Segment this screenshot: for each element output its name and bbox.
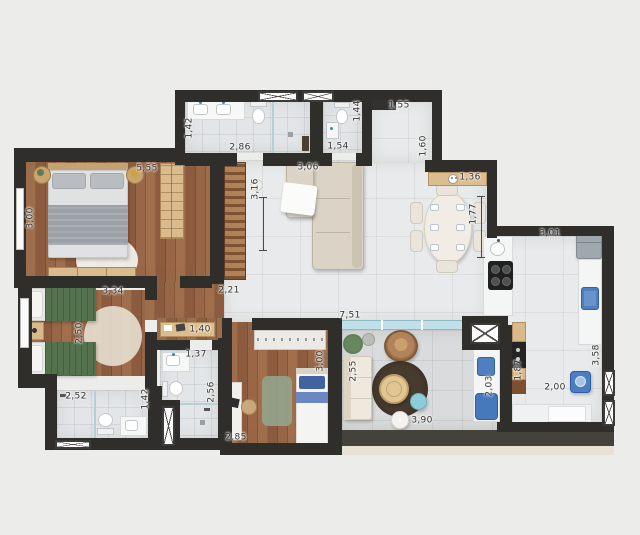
oven-tower (512, 342, 526, 368)
toilet-bowl (169, 381, 183, 396)
master-bed-headboard (48, 163, 128, 170)
wall (263, 153, 332, 166)
wall (356, 153, 372, 166)
toilet-bowl (98, 413, 113, 427)
refrigerator-line (576, 242, 602, 243)
tall-cabinet-wood (512, 380, 526, 394)
mini-fridge (475, 393, 498, 420)
dimension-line (263, 197, 264, 251)
balcony-sofa-line (351, 398, 372, 399)
wall (328, 318, 342, 455)
master-pillow (90, 173, 124, 189)
kitchen-sink (490, 242, 505, 256)
lamp-icon (131, 170, 138, 177)
window-icon (162, 406, 175, 446)
tv-rack (224, 162, 246, 280)
lamp-icon (32, 328, 37, 333)
dining-chair (473, 202, 486, 224)
wall (310, 98, 323, 158)
nook-laptop (176, 323, 186, 331)
master-wardrobe-divider (171, 163, 172, 239)
bedroom3-chair (241, 399, 257, 415)
floor-lamp (251, 179, 263, 191)
burner-icon (502, 265, 511, 274)
toilet (162, 381, 168, 397)
towel (302, 136, 309, 151)
window-icon (470, 323, 500, 344)
dimension-tick (259, 197, 267, 198)
wall (14, 276, 154, 288)
shower-drain (288, 132, 293, 137)
gourmet-sink (477, 357, 495, 376)
toilet (334, 102, 350, 108)
wall (222, 318, 232, 342)
lavabo-sink (326, 122, 339, 139)
balcony-glass-door (342, 320, 462, 330)
wall (145, 276, 157, 300)
wall (218, 338, 232, 450)
toilet-bowl (252, 108, 265, 124)
glass-divider (421, 320, 423, 330)
wall (157, 340, 190, 350)
dining-chair (410, 230, 423, 252)
shower-head-icon (204, 408, 210, 411)
stool (391, 411, 409, 429)
sofa-backrest (352, 164, 362, 268)
tall-cabinet (512, 322, 526, 342)
floor-plan: 5,551,422,863,063,161,441,541,551,601,36… (0, 0, 640, 535)
wall (252, 318, 328, 330)
burner-icon (491, 265, 500, 274)
side-table-blue (410, 393, 427, 410)
window-strip (16, 188, 24, 250)
place-setting (430, 224, 439, 231)
window-icon (603, 370, 615, 396)
burner-icon (502, 277, 511, 286)
faucet-icon (497, 239, 500, 242)
window-strip (20, 298, 29, 348)
bedroom3-throw (296, 392, 328, 403)
bath3-basin (166, 355, 180, 366)
wall (487, 226, 614, 236)
laundry-basket (548, 406, 586, 422)
place-setting (456, 204, 465, 211)
sofa-cushion-line (316, 232, 350, 233)
twin-duvet (45, 342, 96, 375)
rattan-chair (384, 330, 418, 362)
dining-chair (436, 260, 458, 273)
dining-chair (410, 202, 423, 224)
plant-icon (37, 169, 44, 176)
window-icon (603, 400, 615, 426)
faucet-icon (172, 353, 175, 356)
balcony-ledge (330, 446, 614, 455)
bedroom3-rug (262, 376, 292, 426)
place-setting (430, 244, 439, 251)
dimension-tick (477, 196, 485, 197)
window-icon (302, 91, 334, 102)
bedroom3-wardrobe-rail (257, 338, 323, 341)
bar-service-icon-dot (451, 177, 453, 179)
wall (14, 148, 185, 162)
bedroom3-pillow (299, 376, 325, 389)
shower-glass (94, 390, 96, 438)
master-blanket (48, 205, 128, 245)
place-setting (430, 204, 439, 211)
balcony-sofa-line (351, 377, 372, 378)
tall-cabinet (512, 368, 526, 380)
dimension-tick (477, 257, 485, 258)
wall (220, 443, 342, 455)
shower-head-icon (60, 394, 66, 397)
place-setting (456, 244, 465, 251)
wall (432, 90, 442, 165)
wall (210, 160, 224, 284)
dimension-tick (259, 250, 267, 251)
glass-divider (381, 320, 383, 330)
sofa-throw (280, 182, 317, 216)
bar-service-icon (448, 174, 458, 184)
sofa-cushion-line (316, 198, 350, 199)
wall (497, 422, 614, 432)
wall (145, 332, 157, 390)
nook-paper (164, 325, 172, 331)
coffee-table-ring (386, 381, 402, 397)
kitchen-basin-inner (584, 291, 596, 306)
wall (45, 385, 57, 447)
shower-glass (272, 100, 274, 153)
shower-drain (200, 420, 205, 425)
master-bath-basin (193, 104, 208, 115)
dimension-line (481, 196, 482, 258)
balcony-sofa-back (344, 356, 351, 420)
bath2-basin (125, 420, 138, 431)
washer-door-icon (575, 376, 586, 387)
oven-knob-icon (516, 348, 520, 352)
toilet (97, 428, 114, 435)
balcony-parapet (330, 430, 614, 446)
bedroom3-bed-headboard (296, 368, 328, 374)
wall (362, 98, 372, 158)
master-bath-basin (216, 104, 231, 115)
entry-door (372, 100, 396, 110)
master-wardrobe (160, 163, 184, 239)
oven-knob-icon (516, 357, 520, 361)
planter-pot (362, 333, 375, 346)
window-icon (55, 440, 91, 449)
window-icon (258, 91, 298, 102)
master-pillow (52, 173, 86, 189)
wall (180, 276, 212, 288)
twin-duvet (45, 288, 96, 321)
balcony-plant (343, 334, 363, 354)
burner-icon (491, 277, 500, 286)
soap-icon (330, 127, 333, 130)
place-setting (456, 224, 465, 231)
bar-service-icon-dot (455, 177, 457, 179)
